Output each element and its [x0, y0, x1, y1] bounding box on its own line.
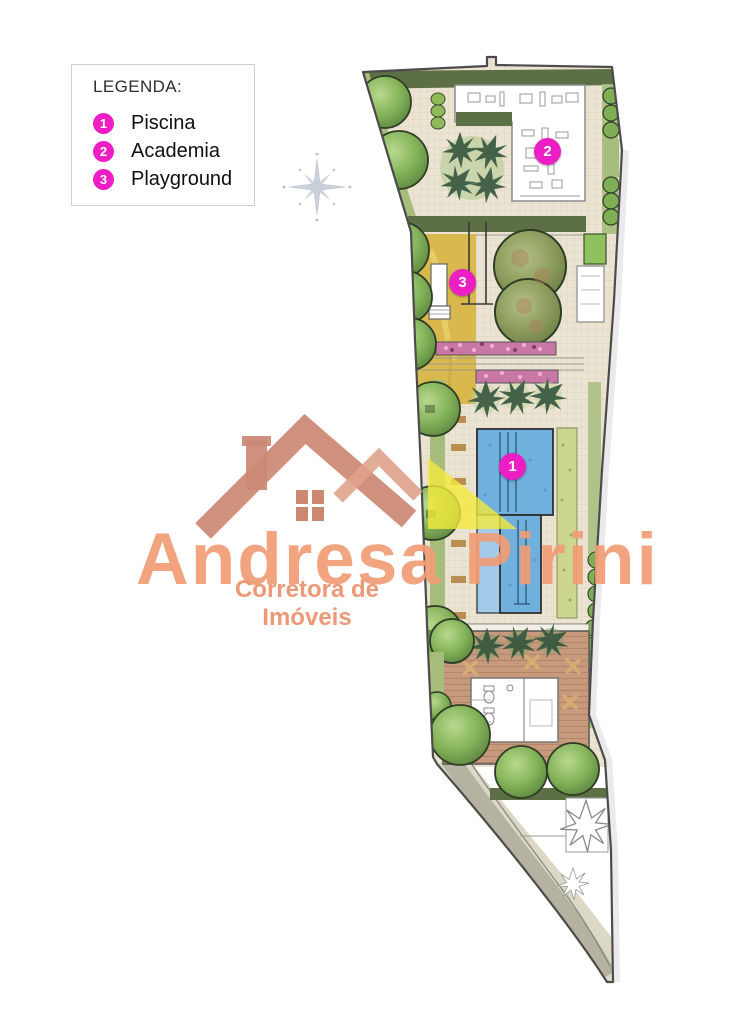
- legend-box: LEGENDA: 1 Piscina 2 Academia 3 Playgrou…: [71, 64, 255, 206]
- pergola-structure: [577, 266, 604, 322]
- legend-label-academia: Academia: [131, 140, 220, 163]
- legend-dot-1: 1: [93, 113, 114, 134]
- tree: [430, 705, 490, 765]
- compass-rose-icon: [283, 153, 352, 222]
- tree: [495, 746, 547, 798]
- legend-dot-3: 3: [93, 169, 114, 190]
- legend-item-academia: 2 Academia: [93, 140, 254, 163]
- legend-item-playground: 3 Playground: [93, 168, 254, 191]
- legend-title: LEGENDA:: [93, 77, 254, 97]
- marker-academia: 2: [534, 138, 561, 165]
- legend-item-piscina: 1 Piscina: [93, 112, 254, 135]
- site-plan-canvas: LEGENDA: 1 Piscina 2 Academia 3 Playgrou…: [0, 0, 756, 1024]
- oval-shrubs: [431, 93, 445, 129]
- marker-playground: 3: [449, 269, 476, 296]
- tree: [370, 131, 428, 189]
- legend-label-piscina: Piscina: [131, 112, 195, 135]
- marker-piscina: 1: [499, 453, 526, 480]
- legend-label-playground: Playground: [131, 168, 232, 191]
- canopy-trees: [494, 230, 566, 345]
- hedge-band: [408, 216, 586, 232]
- legend-dot-2: 2: [93, 141, 114, 162]
- brand-tagline-watermark: Corretora de Imóveis: [188, 576, 426, 632]
- window-icon: [296, 490, 324, 521]
- tree: [547, 743, 599, 795]
